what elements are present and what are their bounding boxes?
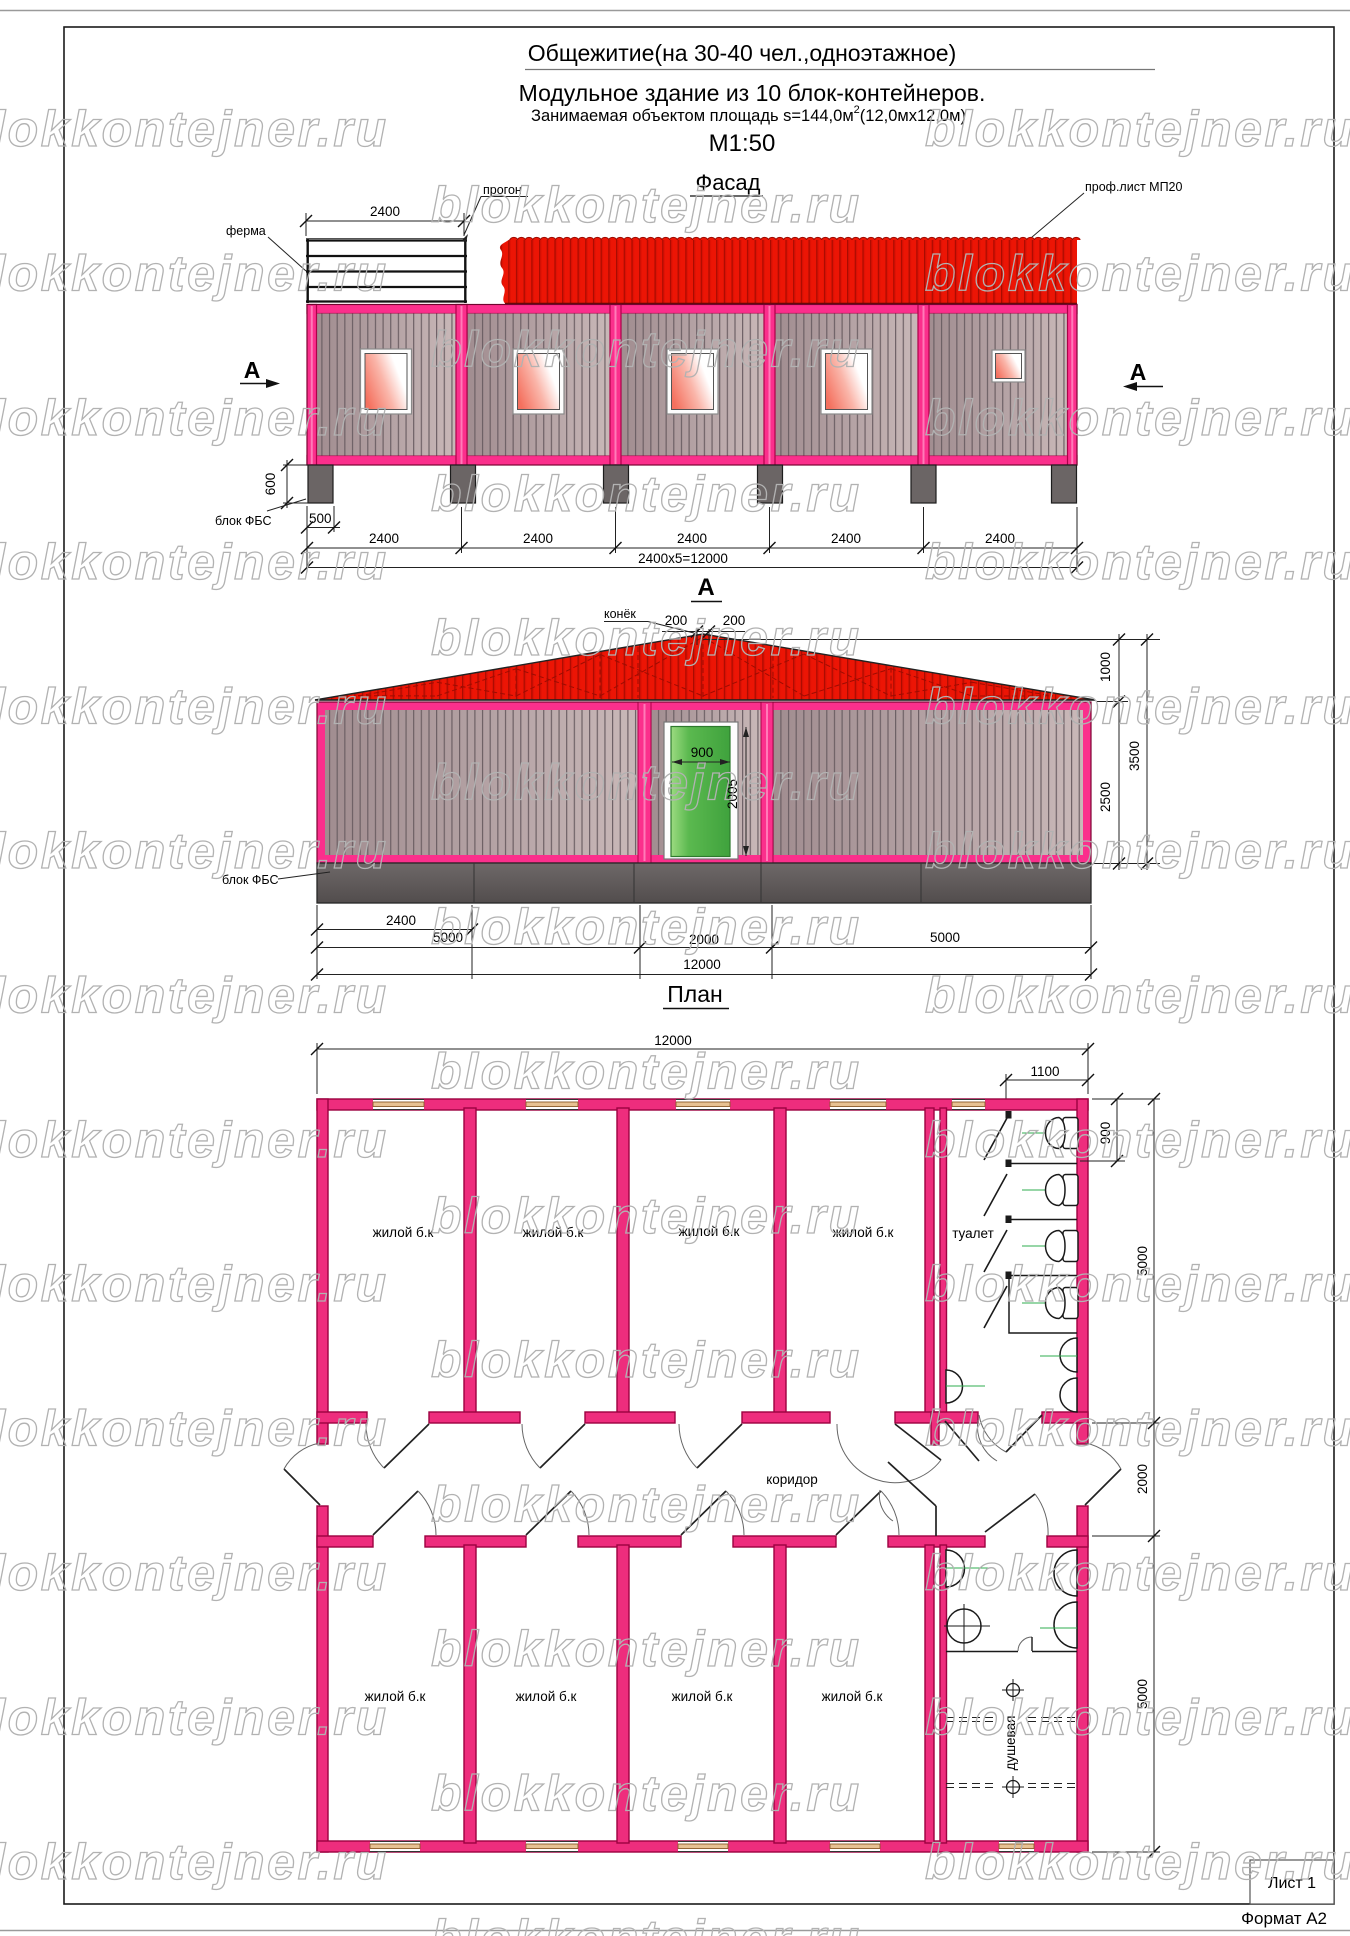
svg-text:1100: 1100 (1030, 1064, 1059, 1079)
svg-text:2400: 2400 (677, 531, 707, 546)
svg-text:blokkontejner.ru: blokkontejner.ru (431, 1477, 859, 1533)
svg-text:blokkontejner.ru: blokkontejner.ru (0, 823, 386, 879)
svg-text:А: А (1130, 359, 1147, 385)
svg-text:blokkontejner.ru: blokkontejner.ru (925, 823, 1350, 879)
svg-text:2400: 2400 (386, 913, 416, 928)
svg-text:blokkontejner.ru: blokkontejner.ru (431, 321, 859, 377)
svg-text:Формат А2: Формат А2 (1241, 1909, 1327, 1928)
svg-text:blokkontejner.ru: blokkontejner.ru (0, 1256, 386, 1312)
svg-text:блок ФБС: блок ФБС (215, 514, 272, 528)
svg-text:жилой б.к: жилой б.к (672, 1689, 733, 1704)
svg-text:blokkontejner.ru: blokkontejner.ru (0, 1401, 386, 1457)
svg-text:blokkontejner.ru: blokkontejner.ru (0, 390, 386, 446)
svg-text:blokkontejner.ru: blokkontejner.ru (0, 1689, 386, 1745)
svg-text:blokkontejner.ru: blokkontejner.ru (0, 534, 386, 590)
svg-text:blokkontejner.ru: blokkontejner.ru (925, 1256, 1350, 1312)
svg-text:500: 500 (309, 511, 332, 526)
svg-text:Общежитие(на 30-40 чел.,одноэт: Общежитие(на 30-40 чел.,одноэтажное) (528, 40, 956, 66)
svg-text:5000: 5000 (930, 930, 960, 945)
svg-text:blokkontejner.ru: blokkontejner.ru (0, 245, 386, 301)
svg-text:blokkontejner.ru: blokkontejner.ru (431, 177, 859, 233)
svg-text:blokkontejner.ru: blokkontejner.ru (925, 1112, 1350, 1168)
svg-text:blokkontejner.ru: blokkontejner.ru (431, 899, 859, 955)
svg-text:blokkontejner.ru: blokkontejner.ru (0, 1545, 386, 1601)
svg-text:600: 600 (263, 473, 278, 496)
svg-text:blokkontejner.ru: blokkontejner.ru (0, 101, 386, 157)
svg-text:blokkontejner.ru: blokkontejner.ru (0, 1112, 386, 1168)
svg-text:М1:50: М1:50 (709, 130, 776, 157)
svg-text:2400: 2400 (831, 531, 861, 546)
svg-text:blokkontejner.ru: blokkontejner.ru (431, 1910, 859, 1936)
svg-text:2000: 2000 (1135, 1464, 1150, 1494)
svg-text:blokkontejner.ru: blokkontejner.ru (925, 679, 1350, 735)
svg-text:blokkontejner.ru: blokkontejner.ru (431, 755, 859, 811)
svg-text:blokkontejner.ru: blokkontejner.ru (431, 1043, 859, 1099)
svg-text:жилой б.к: жилой б.к (516, 1689, 577, 1704)
svg-text:blokkontejner.ru: blokkontejner.ru (925, 1401, 1350, 1457)
svg-text:3500: 3500 (1127, 741, 1142, 771)
svg-text:blokkontejner.ru: blokkontejner.ru (0, 679, 386, 735)
svg-text:blokkontejner.ru: blokkontejner.ru (925, 101, 1350, 157)
svg-text:План: План (667, 981, 722, 1007)
svg-text:проф.лист МП20: проф.лист МП20 (1085, 180, 1183, 194)
svg-text:blokkontejner.ru: blokkontejner.ru (431, 1621, 859, 1677)
svg-text:2500: 2500 (1098, 782, 1113, 812)
svg-text:blokkontejner.ru: blokkontejner.ru (925, 1545, 1350, 1601)
svg-text:А: А (697, 574, 714, 601)
svg-text:blokkontejner.ru: blokkontejner.ru (925, 967, 1350, 1023)
svg-text:2400: 2400 (370, 204, 400, 219)
svg-text:1000: 1000 (1098, 652, 1113, 682)
svg-text:blokkontejner.ru: blokkontejner.ru (431, 1188, 859, 1244)
svg-text:blokkontejner.ru: blokkontejner.ru (925, 390, 1350, 446)
svg-text:Занимаемая объектом площадь s: Занимаемая объектом площадь s=144,0м2(12… (531, 104, 966, 125)
svg-text:blokkontejner.ru: blokkontejner.ru (925, 1834, 1350, 1890)
svg-text:blokkontejner.ru: blokkontejner.ru (431, 610, 859, 666)
svg-text:blokkontejner.ru: blokkontejner.ru (431, 1765, 859, 1821)
svg-text:А: А (244, 357, 261, 383)
svg-text:2400: 2400 (523, 531, 553, 546)
svg-text:ферма: ферма (226, 224, 266, 238)
svg-text:blokkontejner.ru: blokkontejner.ru (431, 1332, 859, 1388)
svg-text:жилой б.к: жилой б.к (373, 1225, 434, 1240)
svg-text:blokkontejner.ru: blokkontejner.ru (431, 466, 859, 522)
svg-text:blokkontejner.ru: blokkontejner.ru (0, 1834, 386, 1890)
svg-text:туалет: туалет (952, 1226, 994, 1241)
svg-text:blokkontejner.ru: blokkontejner.ru (925, 534, 1350, 590)
svg-text:12000: 12000 (683, 957, 721, 972)
svg-text:blokkontejner.ru: blokkontejner.ru (925, 245, 1350, 301)
svg-text:жилой б.к: жилой б.к (822, 1689, 883, 1704)
svg-text:blokkontejner.ru: blokkontejner.ru (925, 1689, 1350, 1745)
svg-text:Модульное здание из 10 блок-к: Модульное здание из 10 блок-контейнеров. (519, 80, 986, 106)
svg-text:2400х5=12000: 2400х5=12000 (638, 551, 728, 566)
svg-text:blokkontejner.ru: blokkontejner.ru (0, 967, 386, 1023)
